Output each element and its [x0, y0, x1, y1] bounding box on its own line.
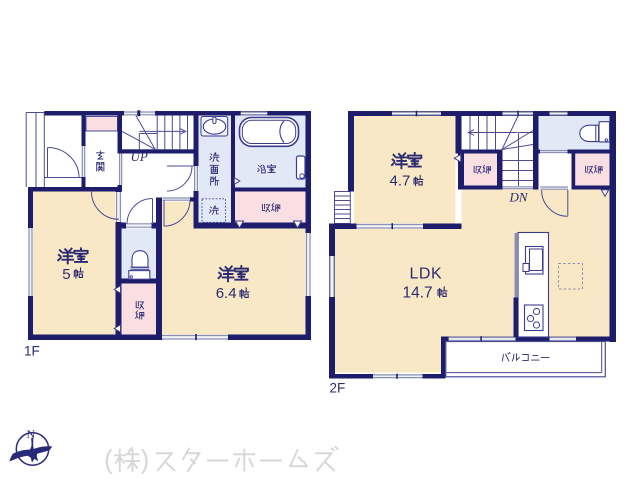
- svg-text:5: 5: [62, 266, 70, 283]
- svg-text:6.4: 6.4: [216, 285, 237, 302]
- svg-text:N: N: [27, 427, 36, 441]
- svg-text:14.7: 14.7: [403, 285, 433, 302]
- svg-text:LDK: LDK: [410, 266, 443, 283]
- svg-text:): ): [141, 445, 150, 475]
- svg-text:4.7: 4.7: [390, 173, 411, 190]
- svg-text:DN: DN: [509, 190, 529, 205]
- svg-text:1F: 1F: [24, 344, 40, 359]
- svg-text:(: (: [104, 445, 113, 475]
- svg-text:2F: 2F: [330, 381, 346, 396]
- svg-text:UP: UP: [131, 149, 148, 164]
